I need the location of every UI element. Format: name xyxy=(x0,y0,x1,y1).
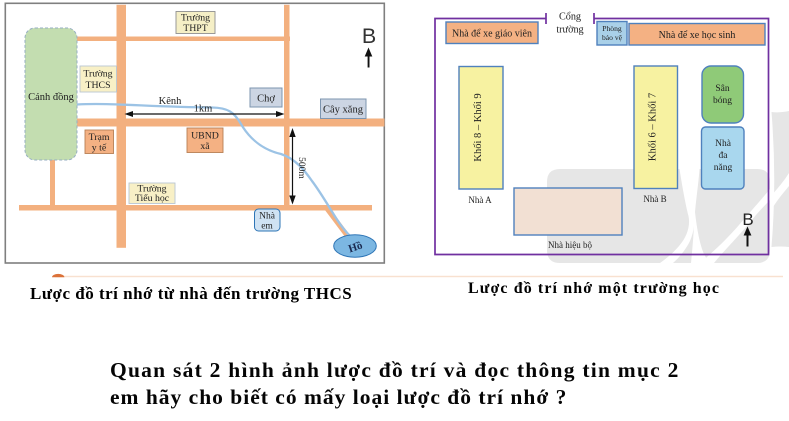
svg-text:Nhà hiệu bộ: Nhà hiệu bộ xyxy=(548,240,592,250)
svg-text:em: em xyxy=(261,222,273,232)
svg-text:Khối 8 – Khối 9: Khối 8 – Khối 9 xyxy=(473,93,484,161)
svg-text:Khối 6 – Khối 7: Khối 6 – Khối 7 xyxy=(648,93,659,161)
svg-text:em hãy cho biết có mấy loại lư: em hãy cho biết có mấy loại lược đồ trí … xyxy=(110,385,567,409)
svg-text:Nhà để xe học sinh: Nhà để xe học sinh xyxy=(659,30,736,41)
svg-text:Trạm: Trạm xyxy=(89,132,110,143)
svg-text:Kênh: Kênh xyxy=(159,96,182,107)
svg-text:y tế: y tế xyxy=(92,143,107,154)
svg-text:UBND: UBND xyxy=(191,131,219,142)
svg-text:Nhà để xe giáo viên: Nhà để xe giáo viên xyxy=(452,29,532,40)
svg-text:1km: 1km xyxy=(194,104,213,115)
svg-text:Tiểu học: Tiểu học xyxy=(135,193,170,204)
svg-text:500m: 500m xyxy=(296,157,306,179)
svg-text:Nhà B: Nhà B xyxy=(643,194,666,204)
svg-text:trường: trường xyxy=(556,25,583,36)
svg-text:năng: năng xyxy=(714,163,733,173)
svg-text:Lược đồ trí nhớ một trường học: Lược đồ trí nhớ một trường học xyxy=(468,280,720,297)
svg-text:THPT: THPT xyxy=(183,23,208,34)
svg-text:Nhà: Nhà xyxy=(259,212,276,222)
svg-text:THCS: THCS xyxy=(85,80,110,91)
svg-text:bảo vệ: bảo vệ xyxy=(602,33,623,42)
svg-text:Chợ: Chợ xyxy=(257,94,275,105)
svg-text:Nhà: Nhà xyxy=(715,139,732,149)
svg-text:Cổng: Cổng xyxy=(559,12,581,23)
svg-text:Phòng: Phòng xyxy=(602,24,622,33)
svg-text:Trường: Trường xyxy=(83,69,112,80)
svg-text:Cánh đồng: Cánh đồng xyxy=(28,92,75,103)
svg-text:xã: xã xyxy=(200,141,210,152)
svg-text:B: B xyxy=(742,210,753,229)
svg-text:Cây xăng: Cây xăng xyxy=(323,105,364,116)
svg-text:Trường: Trường xyxy=(181,13,210,24)
svg-text:Quan sát 2 hình ảnh lược đồ tr: Quan sát 2 hình ảnh lược đồ trí và đọc t… xyxy=(110,358,680,382)
svg-text:Nhà A: Nhà A xyxy=(468,195,492,205)
svg-text:bóng: bóng xyxy=(713,96,732,106)
svg-text:đa: đa xyxy=(719,151,729,161)
svg-text:Sân: Sân xyxy=(715,84,730,94)
svg-text:Lược đồ trí nhớ từ nhà đến trư: Lược đồ trí nhớ từ nhà đến trường THCS xyxy=(30,284,352,303)
svg-text:B: B xyxy=(362,24,376,48)
